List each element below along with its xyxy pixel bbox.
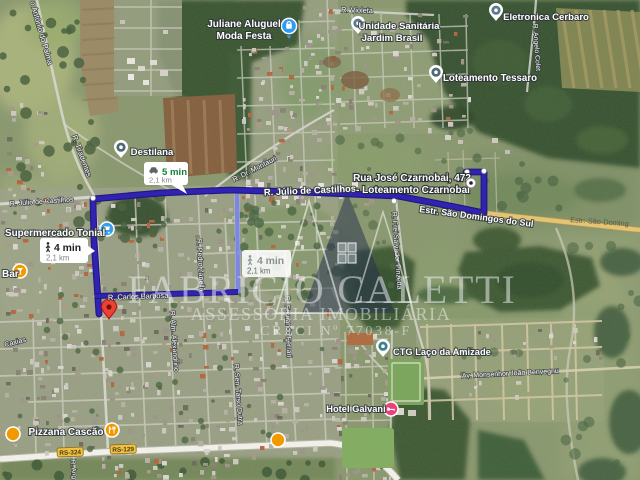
svg-text:- Loteamento Czarnobai: - Loteamento Czarnobai <box>356 185 470 196</box>
svg-text:Loteamento Tessaro: Loteamento Tessaro <box>443 73 537 84</box>
svg-text:Bar: Bar <box>2 269 19 280</box>
svg-text:CTG Laço da Amizade: CTG Laço da Amizade <box>393 347 491 357</box>
svg-text:Eletronica Cerbaro: Eletronica Cerbaro <box>503 12 589 23</box>
svg-text:Juliane Aluguel: Juliane Aluguel <box>207 19 281 30</box>
svg-text:2,1 km: 2,1 km <box>46 254 69 263</box>
svg-text:4 min: 4 min <box>54 243 81 254</box>
svg-text:Hotel Galvani: Hotel Galvani <box>326 404 385 414</box>
svg-text:RS-324: RS-324 <box>59 449 81 457</box>
svg-text:R. Violeta: R. Violeta <box>341 5 374 15</box>
svg-text:2,1 km: 2,1 km <box>149 176 172 185</box>
svg-text:R. Ang: R. Ang <box>69 460 77 480</box>
svg-text:Jardim Brasil: Jardim Brasil <box>362 33 423 44</box>
svg-text:RS-129: RS-129 <box>112 446 134 454</box>
svg-text:Destilana: Destilana <box>131 147 174 158</box>
svg-text:Unidade Sanitária: Unidade Sanitária <box>358 21 440 32</box>
svg-text:ASSESSORIA IMOBILIÁRIA: ASSESSORIA IMOBILIÁRIA <box>191 303 452 324</box>
svg-text:Pizzana Cascão: Pizzana Cascão <box>28 427 103 438</box>
svg-text:Moda Festa: Moda Festa <box>216 31 271 42</box>
svg-text:CRECI Nº 77038-F: CRECI Nº 77038-F <box>260 324 412 339</box>
svg-text:4 min: 4 min <box>257 256 284 267</box>
svg-text:Rua José Czarnobai, 472: Rua José Czarnobai, 472 <box>353 173 471 184</box>
svg-text:Supermercado Tonial: Supermercado Tonial <box>5 228 105 239</box>
